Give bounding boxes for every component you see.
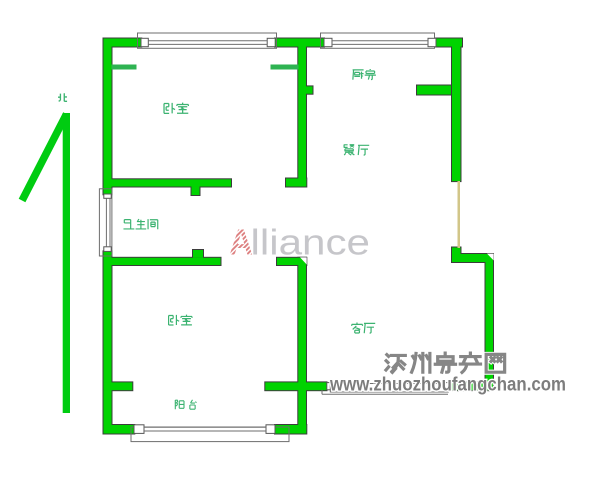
svg-text:lliance: lliance <box>251 222 371 263</box>
svg-text:A: A <box>229 222 253 263</box>
svg-text:www.zhuozhoufangchan.com: www.zhuozhoufangchan.com <box>329 374 566 396</box>
